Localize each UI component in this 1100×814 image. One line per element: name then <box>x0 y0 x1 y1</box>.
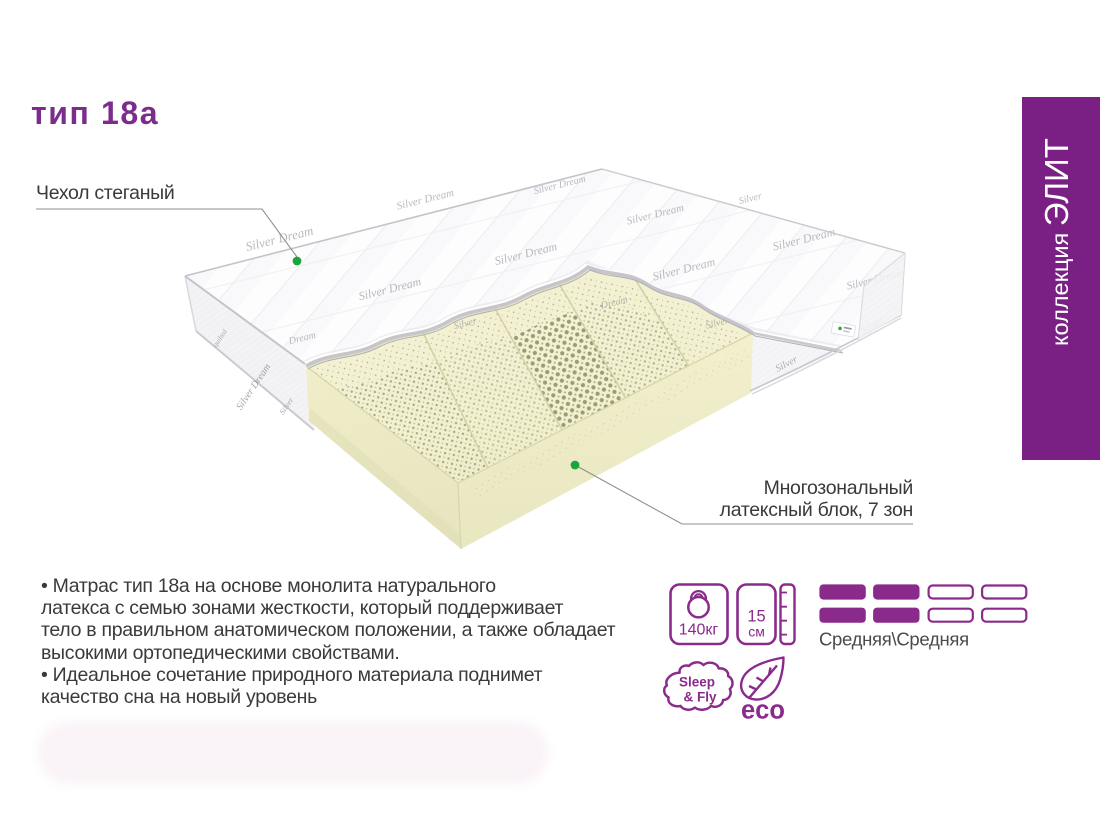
svg-text:см: см <box>748 624 765 640</box>
svg-text:Средняя\Средняя: Средняя\Средняя <box>819 629 969 650</box>
svg-text:Sleep: Sleep <box>679 675 715 690</box>
svg-text:140кг: 140кг <box>679 622 719 639</box>
svg-text:eco: eco <box>741 697 785 725</box>
svg-text:& Fly: & Fly <box>683 690 716 705</box>
